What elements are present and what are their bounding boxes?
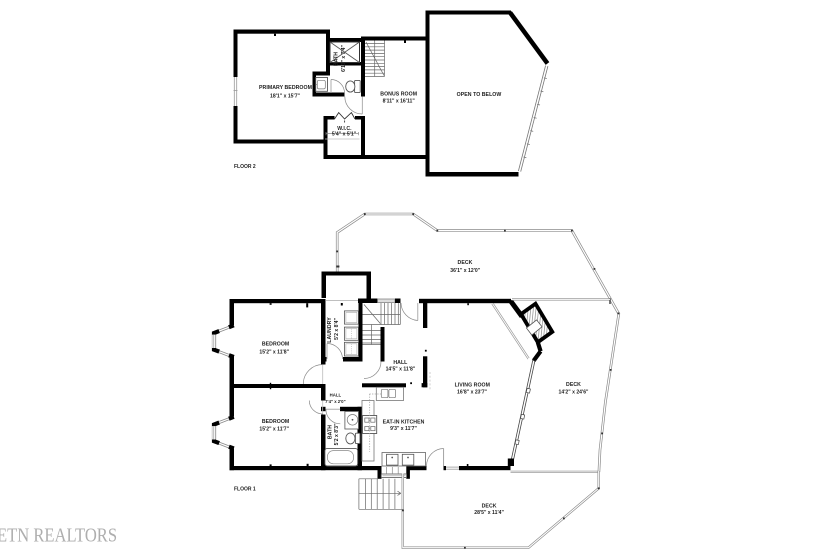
svg-text:36'1" x 12'0": 36'1" x 12'0" [450,268,480,274]
svg-text:PRIMARY BEDROOM: PRIMARY BEDROOM [259,85,312,91]
svg-text:LIVING ROOM: LIVING ROOM [455,382,490,388]
svg-text:EAT-IN KITCHEN: EAT-IN KITCHEN [383,420,425,426]
svg-text:9'3" x 11'7": 9'3" x 11'7" [390,426,417,432]
svg-text:5'4" x 5'1": 5'4" x 5'1" [332,132,357,138]
svg-text:18'1" x 15'7": 18'1" x 15'7" [270,93,300,99]
svg-text:DECK: DECK [458,260,473,266]
svg-text:15'2" x 11'7": 15'2" x 11'7" [259,426,289,432]
svg-text:BONUS ROOM: BONUS ROOM [380,92,417,98]
svg-text:HALL: HALL [393,360,408,366]
svg-text:HALL: HALL [330,392,342,397]
svg-text:DECK: DECK [566,382,581,388]
svg-text:16'8" x 23'7": 16'8" x 23'7" [457,390,487,396]
svg-text:5'2 x 8'3": 5'2 x 8'3" [334,423,340,445]
svg-text:BEDROOM: BEDROOM [262,342,289,348]
svg-text:7'4" x 2'0": 7'4" x 2'0" [325,399,345,404]
svg-text:DECK: DECK [482,503,497,509]
svg-text:8'11" x 16'11": 8'11" x 16'11" [383,99,416,105]
svg-text:FLOOR 2: FLOOR 2 [234,164,256,170]
svg-text:LAUNDRY: LAUNDRY [327,317,333,343]
svg-text:OPEN TO BELOW: OPEN TO BELOW [457,92,502,98]
svg-text:BATH: BATH [328,425,334,439]
svg-text:ETN REALTORS: ETN REALTORS [0,524,117,546]
svg-text:5'2 x 8'4": 5'2 x 8'4" [334,318,340,340]
svg-text:28'5" x 11'4": 28'5" x 11'4" [474,510,504,516]
svg-text:FLOOR 1: FLOOR 1 [234,487,256,493]
svg-text:6'11" x 7'4": 6'11" x 7'4" [341,45,347,72]
svg-text:14'2" x 24'6": 14'2" x 24'6" [559,390,589,396]
svg-text:15'2" x 11'8": 15'2" x 11'8" [259,350,289,356]
svg-text:14'5" x 11'8": 14'5" x 11'8" [386,367,416,373]
svg-text:BATH: BATH [333,52,339,66]
svg-text:BEDROOM: BEDROOM [262,419,289,425]
